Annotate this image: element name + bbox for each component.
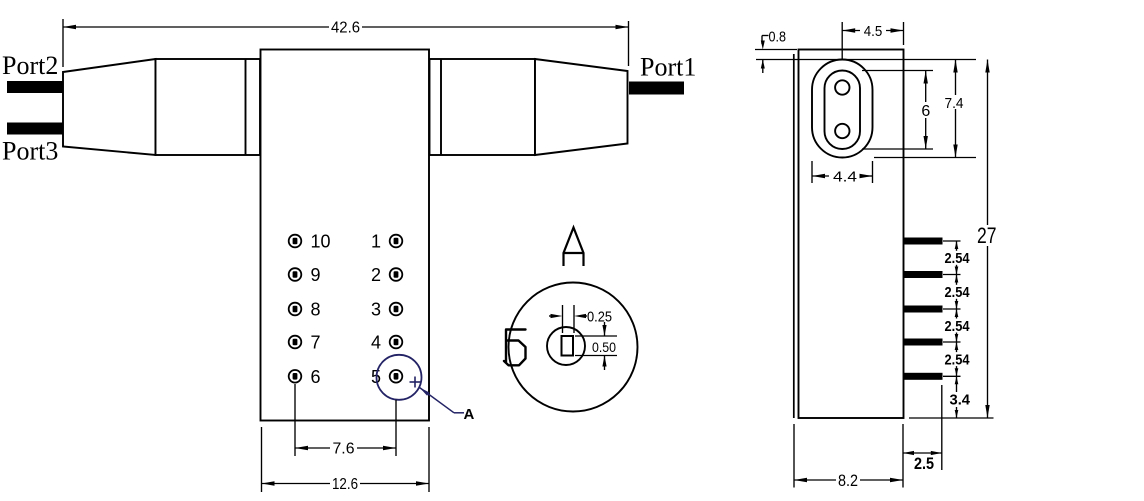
svg-text:0.8: 0.8 <box>769 29 787 46</box>
svg-text:3: 3 <box>371 300 381 320</box>
svg-text:7.4: 7.4 <box>945 95 964 112</box>
svg-text:12.6: 12.6 <box>332 476 358 493</box>
svg-text:2: 2 <box>371 265 381 285</box>
svg-text:42.6: 42.6 <box>331 20 360 37</box>
svg-text:8: 8 <box>311 300 321 320</box>
svg-text:2.54: 2.54 <box>945 284 971 301</box>
svg-text:4.4: 4.4 <box>833 169 857 186</box>
svg-text:1: 1 <box>371 232 381 252</box>
svg-text:Port1: Port1 <box>640 53 696 82</box>
svg-text:6: 6 <box>921 103 930 120</box>
svg-text:10: 10 <box>311 232 331 252</box>
svg-text:4.5: 4.5 <box>864 23 883 40</box>
svg-text:9: 9 <box>311 265 321 285</box>
svg-text:2.54: 2.54 <box>945 318 971 335</box>
svg-text:4: 4 <box>371 333 381 353</box>
svg-text:7.6: 7.6 <box>333 441 355 458</box>
svg-text:0.50: 0.50 <box>592 339 616 355</box>
svg-text:3.4: 3.4 <box>950 392 971 409</box>
svg-text:2.54: 2.54 <box>945 250 971 267</box>
svg-text:0.25: 0.25 <box>587 309 612 326</box>
svg-text:7: 7 <box>311 333 321 353</box>
svg-text:Port3: Port3 <box>2 137 58 166</box>
svg-text:6: 6 <box>311 367 321 387</box>
svg-text:8.2: 8.2 <box>838 471 858 490</box>
svg-text:27: 27 <box>977 223 997 248</box>
svg-text:2.54: 2.54 <box>945 352 971 369</box>
svg-text:A: A <box>464 406 475 423</box>
svg-text:Port2: Port2 <box>2 51 58 80</box>
svg-text:2.5: 2.5 <box>914 454 934 473</box>
